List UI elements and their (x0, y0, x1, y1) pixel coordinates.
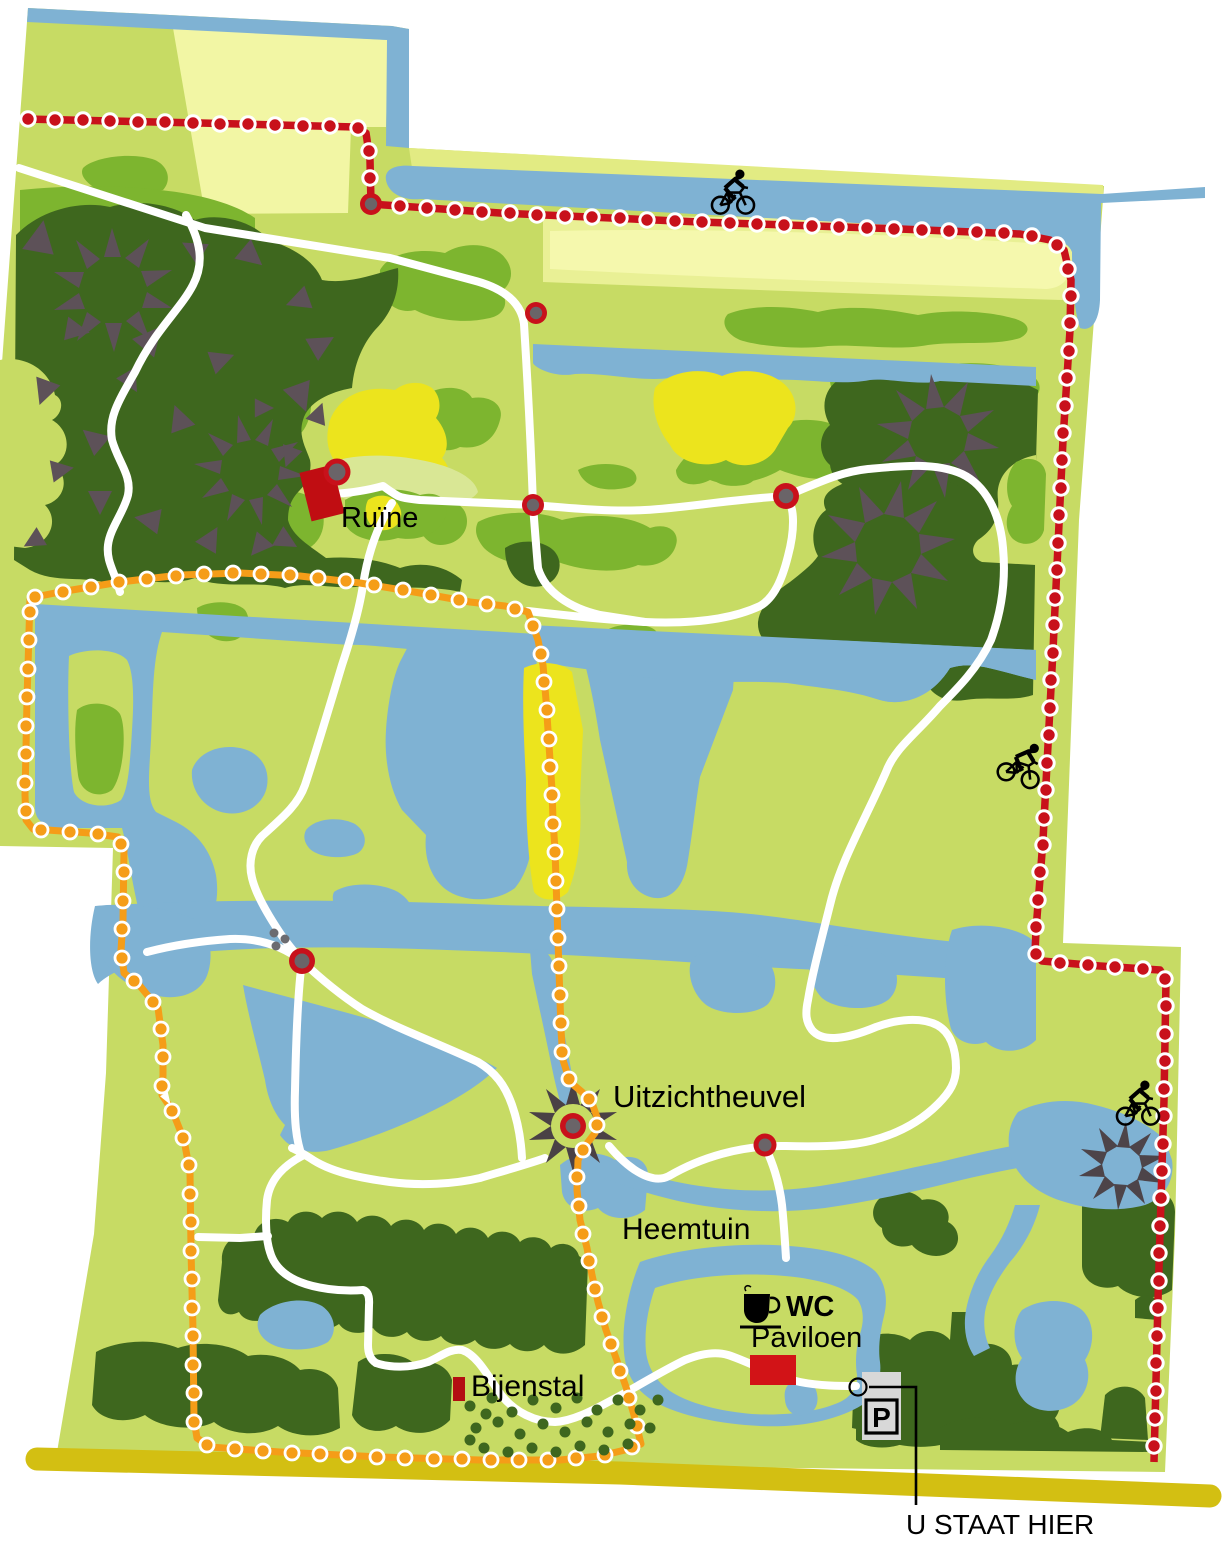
svg-text:Bijenstal: Bijenstal (471, 1370, 584, 1403)
svg-text:P: P (872, 1402, 891, 1433)
svg-text:WC: WC (786, 1291, 834, 1323)
svg-text:Paviloen: Paviloen (751, 1322, 862, 1354)
svg-text:Uitzichtheuvel: Uitzichtheuvel (613, 1079, 806, 1114)
svg-text:U STAAT HIER: U STAAT HIER (906, 1509, 1094, 1540)
svg-text:Ruïne: Ruïne (341, 502, 418, 534)
svg-text:Heemtuin: Heemtuin (622, 1213, 750, 1246)
